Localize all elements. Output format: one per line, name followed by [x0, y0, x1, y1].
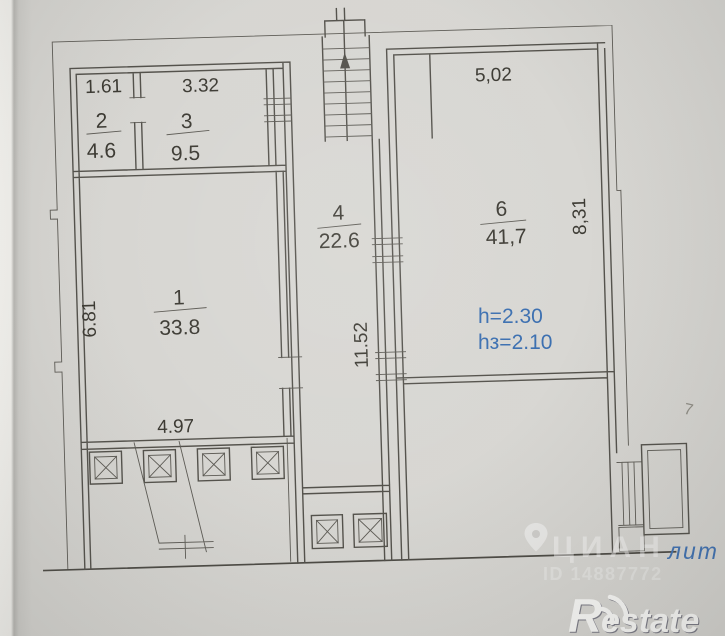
scanned-floor-plan-photo: 1.61 2 4.6 3.32 3 9.5 1 33.8 6.81 4.97 4… — [0, 0, 725, 636]
room6-top-dim: 5,02 — [475, 64, 513, 86]
column-markers-corridor — [311, 513, 387, 548]
logo-letter-r: R — [568, 589, 602, 636]
basement-ramp — [134, 438, 291, 565]
room3-area: 9.5 — [171, 142, 201, 166]
height-note-line2: hз=2.10 — [478, 331, 552, 354]
column-marker — [251, 446, 284, 479]
room4-side-dim: 11.52 — [351, 322, 373, 369]
column-markers-left — [89, 446, 284, 484]
liter-label: лит — [666, 538, 719, 564]
stair-walls — [321, 8, 372, 141]
pencil-mark: 7 — [682, 401, 694, 420]
floor-plan-svg: 1.61 2 4.6 3.32 3 9.5 1 33.8 6.81 4.97 4… — [0, 0, 725, 636]
watermark-brand: ЦИАН — [552, 531, 667, 564]
cian-watermark: ЦИАН ID 14887772 — [525, 523, 667, 584]
room2-number: 2 — [95, 109, 107, 132]
column-marker — [197, 448, 230, 481]
plan-drawing: 1.61 2 4.6 3.32 3 9.5 1 33.8 6.81 4.97 4… — [27, 0, 699, 571]
logo-word: estate — [601, 602, 699, 636]
stair-direction-arrow — [340, 52, 350, 68]
restate-logo: R estate — [568, 589, 699, 636]
fraction-lines — [87, 119, 528, 314]
column-marker — [353, 513, 387, 547]
room1-number: 1 — [173, 286, 185, 309]
room4-area: 22.6 — [318, 229, 360, 253]
height-note-line1: h=2.30 — [478, 305, 543, 328]
room3-number: 3 — [180, 110, 192, 133]
watermark-id: ID 14887772 — [543, 564, 663, 584]
room1-bottom-dim: 4.97 — [157, 416, 195, 438]
room1-area: 33.8 — [159, 316, 201, 340]
room3-top-dim: 3.32 — [182, 75, 220, 97]
room6-area: 41,7 — [485, 225, 527, 249]
column-marker — [143, 450, 176, 483]
column-marker — [89, 451, 122, 484]
outer-boundary-line — [45, 25, 631, 570]
room2-area: 4.6 — [87, 139, 117, 163]
staircase — [321, 8, 372, 141]
room6-right-dim: 8,31 — [569, 198, 591, 236]
room1-left-dim: 6.81 — [79, 300, 101, 338]
column-marker — [311, 515, 343, 549]
room6-number: 6 — [495, 198, 507, 221]
room2-top-dim: 1.61 — [85, 76, 123, 98]
room4-number: 4 — [332, 201, 345, 224]
location-pin-hole — [532, 530, 540, 538]
